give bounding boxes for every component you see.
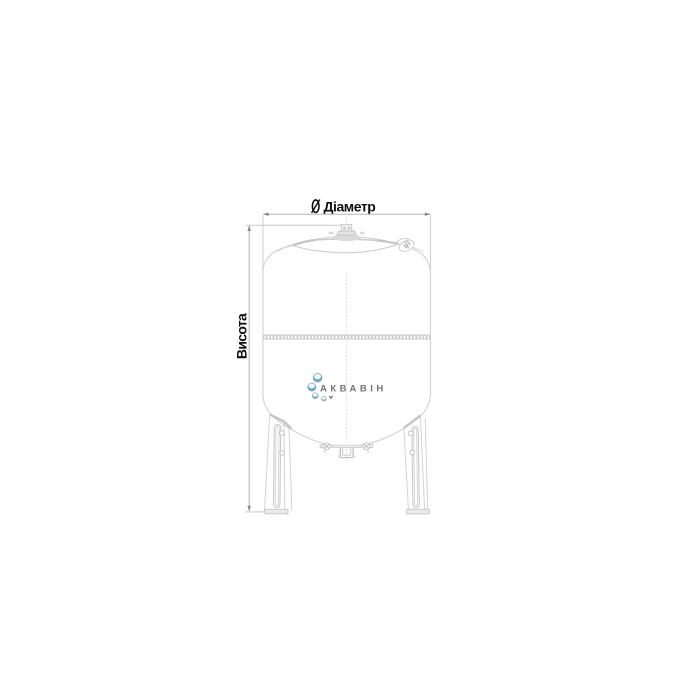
svg-text:Діаметр: Діаметр bbox=[324, 199, 376, 215]
svg-text:Висота: Висота bbox=[234, 313, 250, 359]
svg-text:АКВАВІН: АКВАВІН bbox=[320, 383, 387, 394]
